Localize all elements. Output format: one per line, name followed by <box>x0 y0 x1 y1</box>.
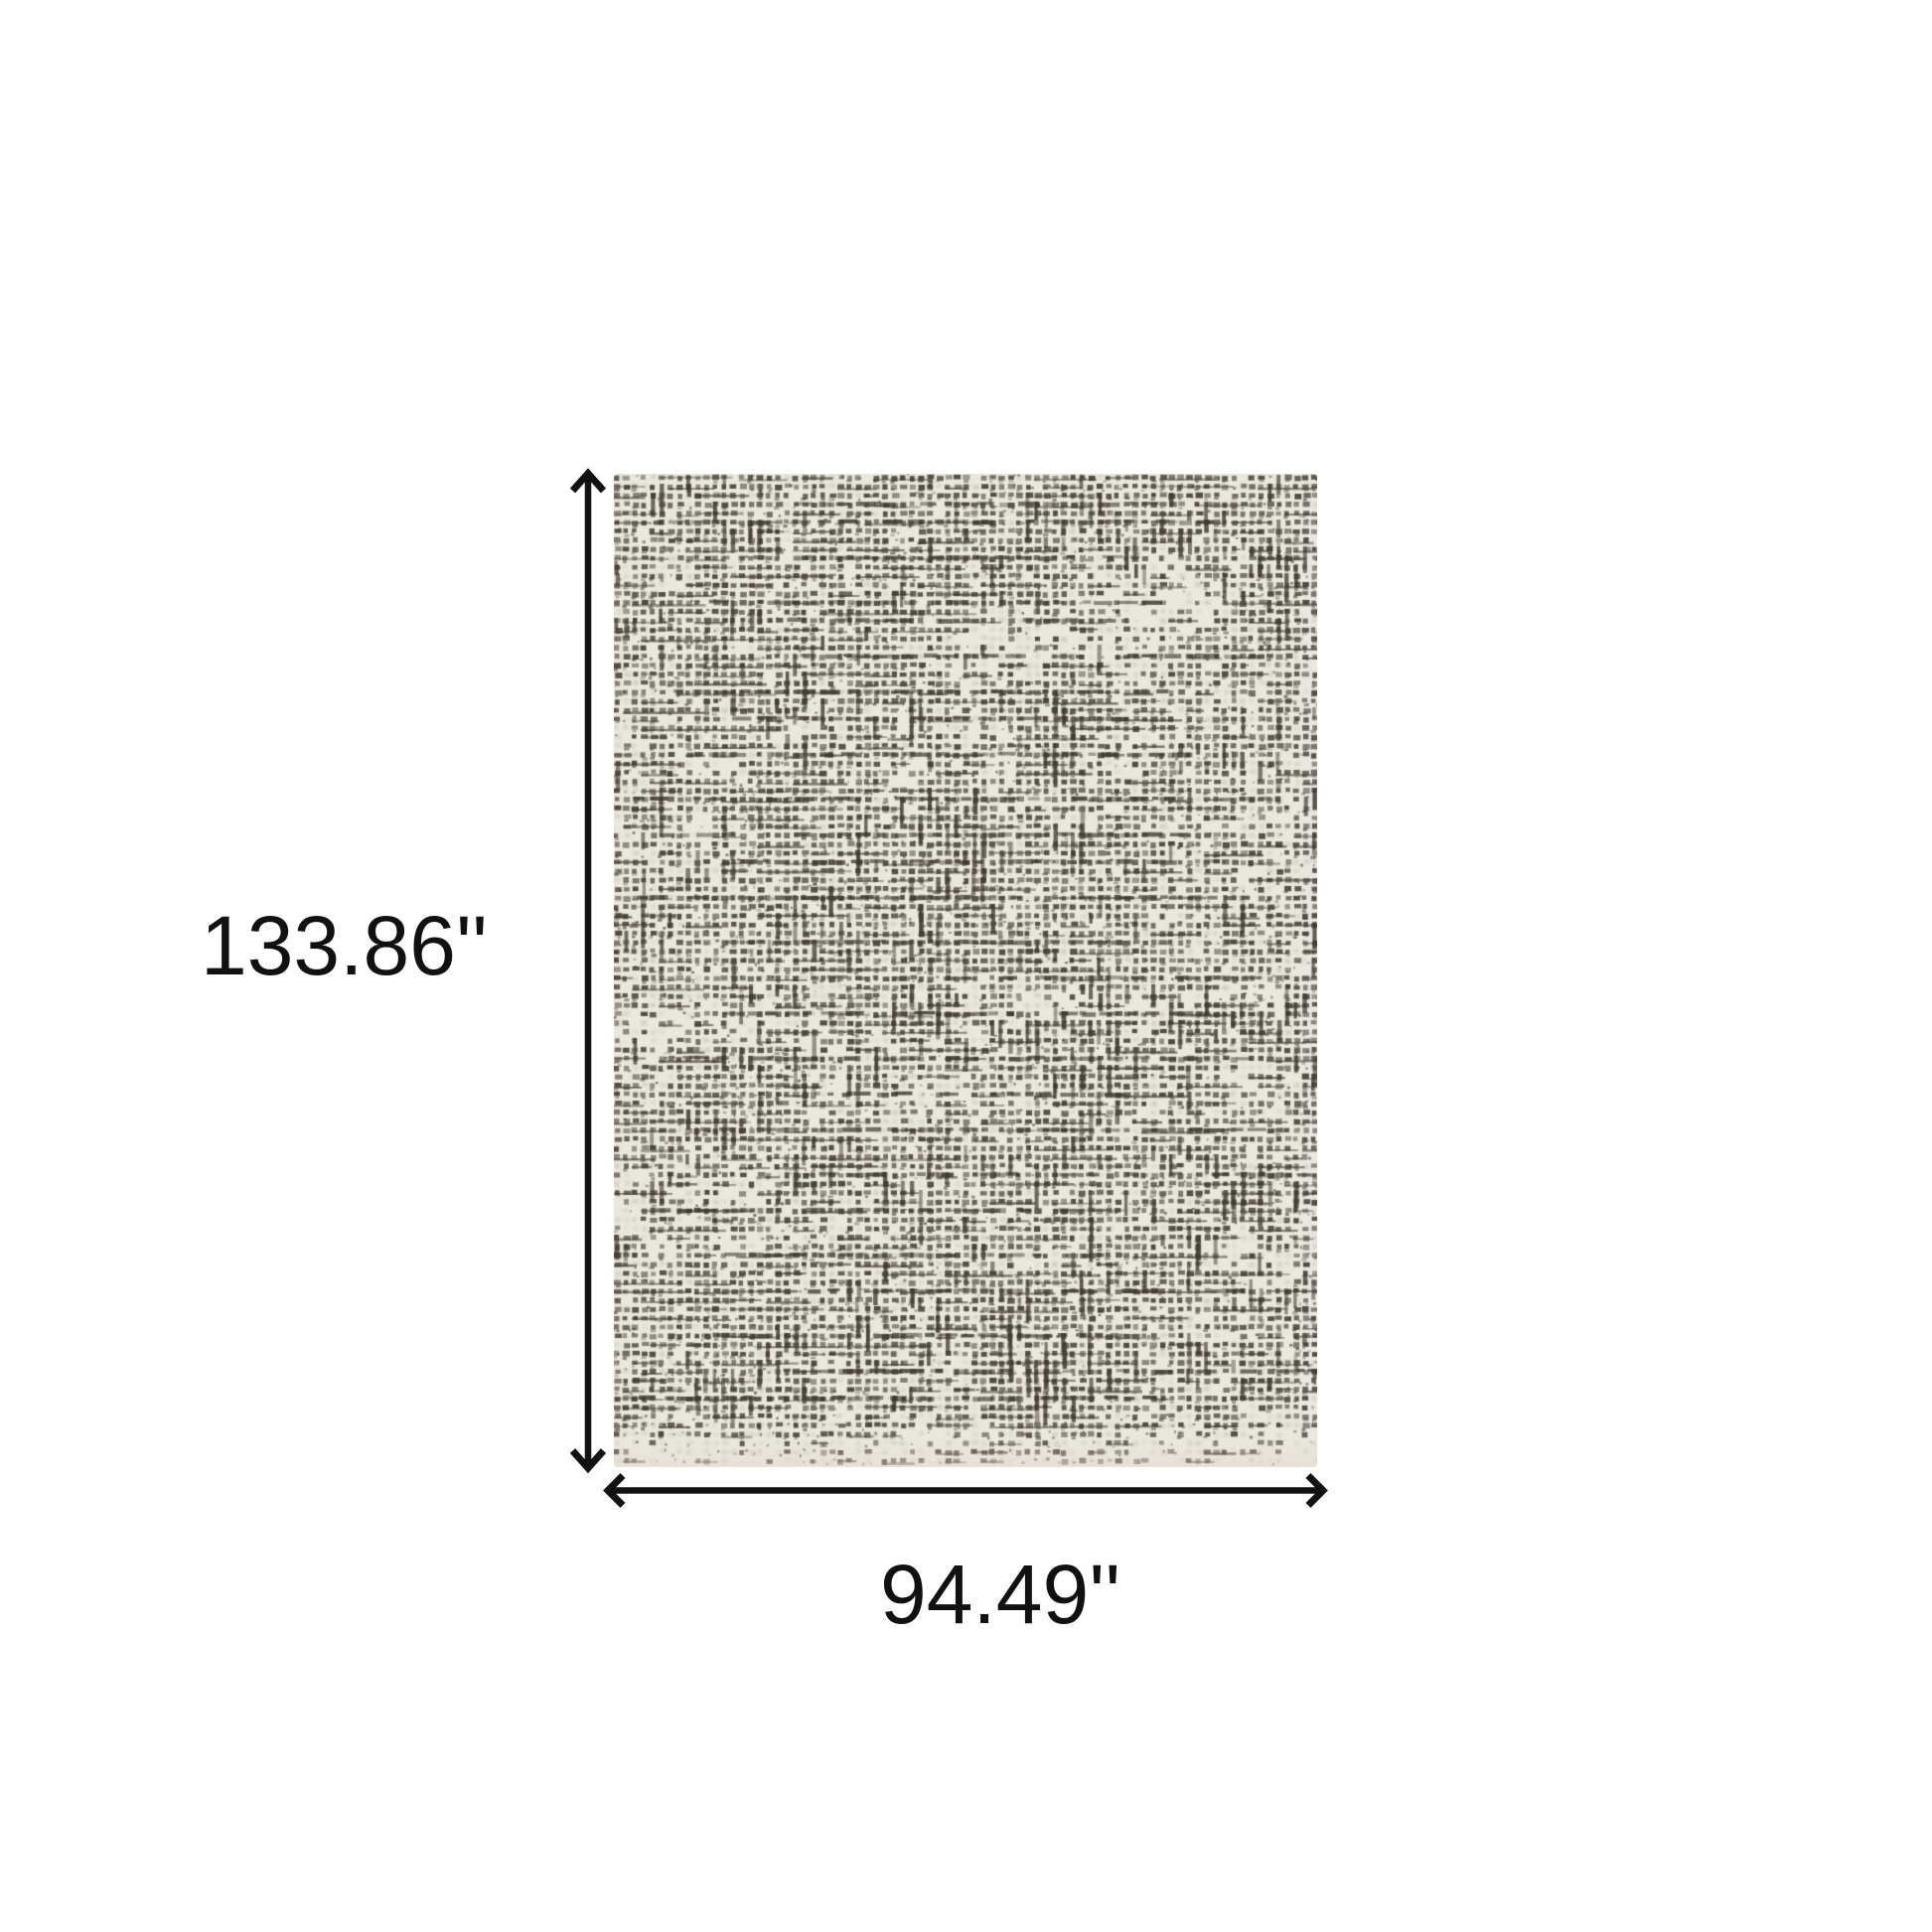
svg-text:94.49'': 94.49'' <box>880 1548 1120 1641</box>
svg-text:133.86'': 133.86'' <box>201 899 488 992</box>
